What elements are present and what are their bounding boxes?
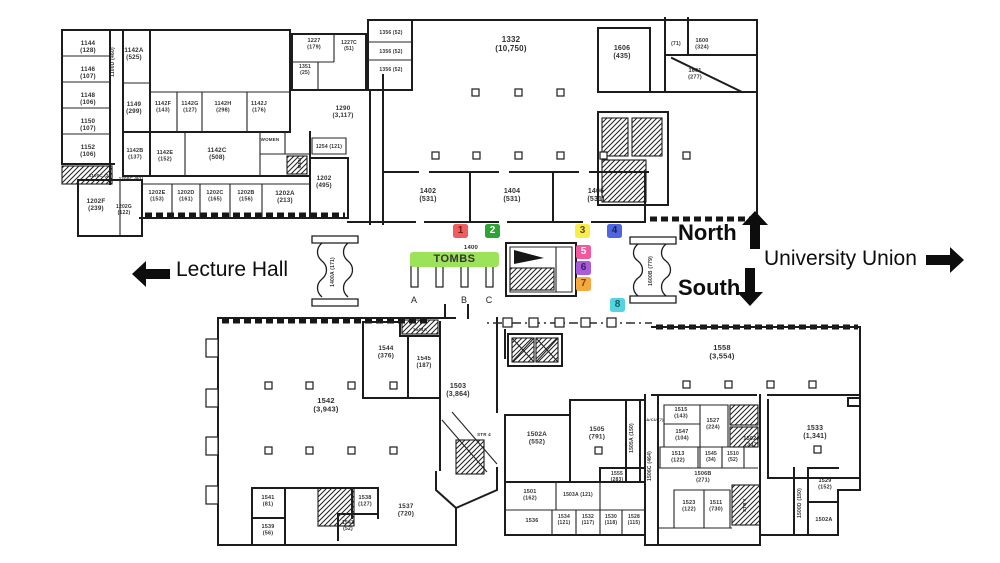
room-label: 1332(10,750) (495, 35, 527, 53)
column-marker (390, 447, 397, 454)
column-marker (473, 152, 480, 159)
south-label: South (678, 275, 740, 301)
room-label: 1506C (464) (647, 451, 653, 481)
room-label: 1227C(51) (341, 40, 357, 52)
room-label: 1290(3,117) (332, 105, 353, 119)
pillar-label-b: B (461, 295, 467, 305)
column-marker (390, 382, 397, 389)
pillar-label-c: C (486, 295, 493, 305)
room-label: 1502A(347) (743, 436, 760, 448)
room-label: 1505(791) (589, 426, 605, 440)
room-label: 1202(495) (316, 175, 332, 189)
column-marker (206, 437, 218, 455)
column-marker (683, 381, 690, 388)
room-label: 1510(52) (727, 451, 739, 463)
column-marker (529, 318, 538, 327)
room-label: 1500D (150) (797, 488, 803, 518)
room-label: 1202F(239) (87, 198, 106, 212)
room-label: 1600B (779) (648, 256, 654, 286)
room-label: 1527(224) (706, 418, 720, 430)
room-label: 1539(56) (261, 524, 274, 536)
tombs-label: TOMBS (433, 253, 475, 265)
column-marker (809, 381, 816, 388)
room-label: 1406(531) (587, 188, 604, 203)
university-union-arrow-icon (926, 247, 964, 273)
room-label: 1202C(165) (206, 190, 223, 202)
room-label: 1142F(143) (155, 101, 172, 113)
room-label: 1547(104) (675, 429, 689, 441)
room-label: 1544A (413, 327, 428, 332)
room-label: 1146(107) (80, 66, 96, 80)
column-marker (472, 89, 479, 96)
room-label: 1601(277) (688, 68, 702, 80)
room-label: 1142G(127) (181, 101, 198, 113)
room-label: MEN (297, 158, 302, 169)
room-label: 1150(107) (80, 118, 96, 132)
column-marker (814, 446, 821, 453)
north-label: North (678, 220, 737, 246)
room-label: 1142C(508) (207, 147, 226, 161)
column-marker (503, 318, 512, 327)
room-label: 1142A(525) (124, 47, 143, 61)
column-marker (557, 152, 564, 159)
room-label: 1356 (52) (379, 67, 402, 73)
room-label: 1544(376) (378, 345, 394, 359)
south-arrow-icon (737, 268, 763, 306)
room-label: 1503(3,864) (446, 383, 470, 398)
room-label: 1529(152) (818, 478, 832, 490)
marker-7[interactable]: 7 (576, 277, 591, 291)
column-marker (348, 382, 355, 389)
room-label: 1202A(213) (275, 190, 295, 204)
tombs-pillars: A B C (411, 266, 493, 305)
room-label: 1511(730) (709, 500, 723, 512)
room-label: 1227(179) (307, 38, 321, 50)
room-label: 1400 (464, 245, 479, 251)
column-marker (348, 447, 355, 454)
column-marker (767, 381, 774, 388)
room-label: STR 1 (742, 498, 747, 512)
marker-3[interactable]: 3 (575, 224, 590, 238)
column-marker (265, 382, 272, 389)
room-label: 1254 (121) (316, 144, 342, 150)
room-label: 1502A(552) (527, 431, 547, 445)
room-label: 1200C (91) (119, 176, 144, 181)
north-arrow-icon (742, 211, 768, 249)
room-label: A/CU (7) (646, 417, 664, 422)
column-marker (683, 152, 690, 159)
room-label: STR 4 (477, 432, 491, 437)
marker-1[interactable]: 1 (453, 224, 468, 238)
room-label: 1149(299) (126, 101, 142, 115)
room-label: 1501(162) (523, 489, 537, 501)
lecture-hall-label: Lecture Hall (176, 258, 288, 282)
column-marker (206, 486, 218, 504)
room-label: 1542(3,943) (313, 396, 338, 413)
room-label: 1528(115) (628, 514, 641, 526)
column-marker (600, 152, 607, 159)
room-label: 1506B(271) (694, 471, 711, 483)
room-label: 1600(324) (695, 38, 709, 50)
room-label: 1545(187) (416, 356, 431, 369)
annotated-floor-plan: A B C 1144(128)1146(107)1148(106)1150(10… (0, 0, 1000, 563)
room-label: 1404(531) (503, 188, 520, 203)
column-marker (595, 447, 602, 454)
column-marker (607, 318, 616, 327)
room-label: 1351(25) (299, 64, 311, 76)
room-label: 1543(52) (342, 520, 354, 532)
marker-6[interactable]: 6 (576, 261, 591, 275)
room-label: 1515(143) (674, 407, 688, 419)
hatched-service-blocks (62, 118, 760, 526)
room-label: 1503A (121) (563, 492, 593, 498)
room-label: 1142E(152) (157, 150, 174, 162)
room-label: (71) (671, 41, 681, 47)
lecture-hall-arrow-icon (132, 261, 170, 287)
column-marker (555, 318, 564, 327)
column-marker (306, 382, 313, 389)
room-label: 1142J(176) (251, 101, 267, 113)
column-marker (206, 389, 218, 407)
room-label: 1555(283) (611, 471, 624, 483)
column-marker (725, 381, 732, 388)
university-union-label: University Union (764, 247, 917, 271)
room-label: 1202D(161) (177, 190, 194, 202)
room-label: 1538(127) (358, 495, 372, 507)
room-label: 1100C (27) (89, 173, 114, 178)
column-marker (265, 447, 272, 454)
room-label: 1545(34) (705, 451, 717, 463)
room-label: 1400A (171) (330, 257, 336, 287)
room-label: 1356 (52) (379, 30, 402, 36)
room-label: WOMEN (261, 137, 280, 142)
marker-2[interactable]: 2 (485, 224, 500, 238)
room-label: 1202B(156) (237, 190, 254, 202)
column-marker (432, 152, 439, 159)
room-label: 1530(118) (605, 514, 618, 526)
column-marker (515, 152, 522, 159)
room-label: 1505A (150) (629, 423, 635, 453)
column-marker (557, 89, 564, 96)
marker-5[interactable]: 5 (576, 245, 591, 259)
room-label: 1534(121) (558, 514, 571, 526)
room-label: 1142H(298) (215, 101, 232, 113)
room-label: 1513(122) (671, 451, 685, 463)
room-label: 1144(128) (80, 40, 96, 54)
room-label: 1202G(122) (116, 204, 132, 216)
room-label: 1536 (525, 518, 538, 524)
room-label: 1537(720) (398, 503, 414, 517)
column-marker (581, 318, 590, 327)
room-label: 1541(81) (261, 495, 274, 507)
room-label: 1356 (52) (379, 49, 402, 55)
room-label: 1558(3,554) (709, 343, 734, 360)
room-label: 1142B(137) (127, 148, 144, 160)
room-label: 1523(122) (682, 500, 696, 512)
room-label: 1502A (815, 517, 832, 523)
pillar-label-a: A (411, 295, 417, 305)
room-label: 1532(117) (582, 514, 595, 526)
tombs-banner: TOMBS (410, 252, 499, 267)
column-marker (515, 89, 522, 96)
room-label: 1152(106) (80, 144, 96, 158)
column-marker (206, 339, 218, 357)
room-label: 1533(1,341) (803, 425, 827, 440)
marker-8[interactable]: 8 (610, 298, 625, 312)
room-label: 1202E(153) (149, 190, 166, 202)
room-label: 1402(531) (419, 188, 436, 203)
expansion-joint-connectors (312, 236, 676, 306)
column-marker (306, 447, 313, 454)
room-label: 1606(435) (613, 45, 630, 60)
room-label: 1148(106) (80, 92, 96, 106)
room-label: 1100D (460) (110, 47, 116, 77)
marker-4[interactable]: 4 (607, 224, 622, 238)
